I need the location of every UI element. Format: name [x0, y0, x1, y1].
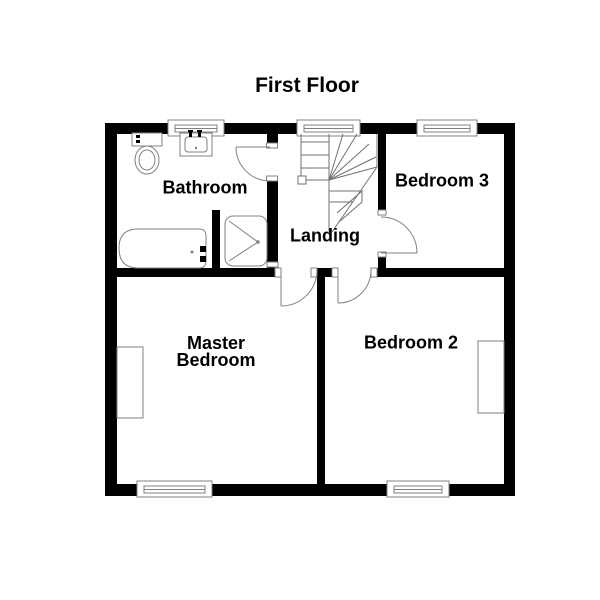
room-label-landing: Landing [290, 228, 360, 245]
bedroom3-door-icon [381, 217, 417, 253]
bathroom-fixtures [119, 130, 267, 268]
shower-icon [225, 216, 267, 266]
window-icon [387, 481, 449, 497]
window-icon [137, 481, 212, 497]
door-jambs [267, 143, 387, 277]
room-label-bedroom3: Bedroom 3 [395, 173, 489, 190]
bathroom-door-icon [236, 147, 270, 181]
bedroom2-furniture [478, 341, 504, 413]
furniture [117, 341, 504, 418]
window-icon [417, 120, 477, 136]
toilet-icon [132, 133, 162, 174]
room-label-bathroom: Bathroom [163, 180, 248, 197]
staircase-icon [298, 134, 377, 232]
window-icon [297, 120, 360, 136]
floor-plan: First Floor Bathroom Landing Bedroom 3 M… [0, 0, 600, 600]
room-label-master-bedroom: Master Bedroom [176, 335, 255, 369]
room-label-master-line2: Bedroom [176, 352, 255, 369]
bathtub-icon [119, 229, 206, 268]
bedroom2-door-icon [338, 270, 371, 303]
sink-icon [180, 130, 212, 156]
page-title: First Floor [255, 74, 359, 98]
room-label-bedroom2: Bedroom 2 [364, 335, 458, 352]
master-bedroom-furniture [117, 347, 143, 418]
